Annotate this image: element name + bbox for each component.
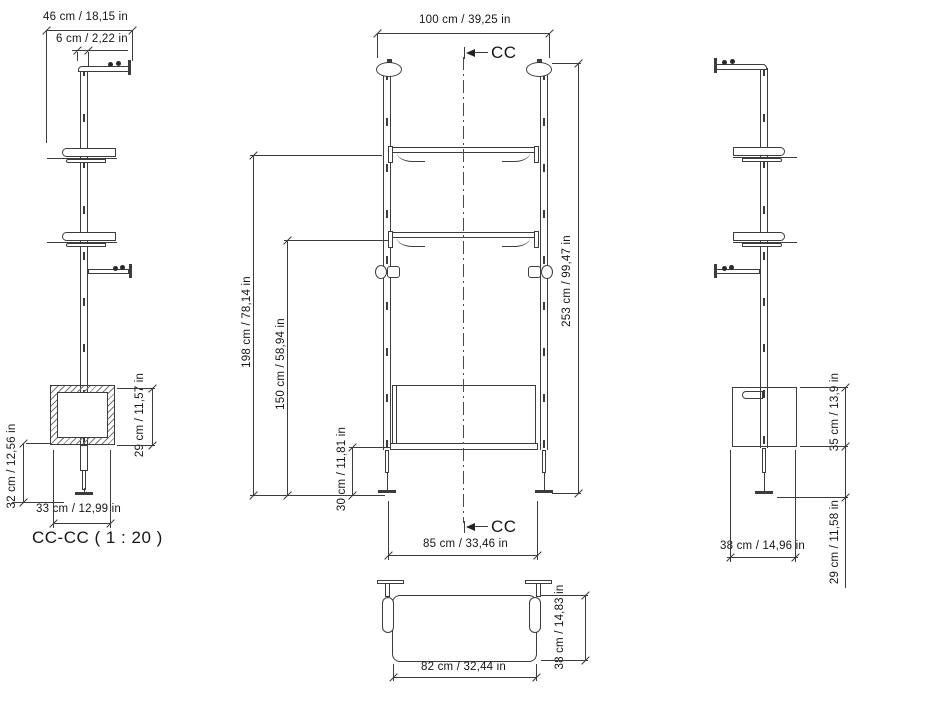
shelf-end-cap [388, 146, 393, 163]
dim-label-shelf1-height: 198 cm / 78,14 in [240, 257, 254, 387]
bracket-screw [116, 61, 121, 66]
wall-bracket-bar [377, 580, 404, 584]
extension-line [552, 493, 581, 494]
dim-label-panel-width: 82 cm / 32,44 in [421, 661, 506, 673]
foot-base [755, 491, 773, 494]
pole-clamp-top-view [529, 597, 541, 633]
pole-clamp-top-view [382, 597, 394, 633]
dim-label-inner-width: 85 cm / 33,46 in [423, 538, 508, 550]
foot-base [75, 492, 93, 495]
pole-inner-rod [762, 448, 766, 473]
dim-label-box-height: 29 cm / 11,57 in [133, 367, 147, 463]
dimension-line [845, 387, 846, 588]
dimension-line [53, 523, 110, 524]
dim-label-shelf2-height: 150 cm / 58,94 in [274, 299, 288, 429]
section-arrow [466, 49, 475, 57]
bracket-screw [722, 266, 727, 271]
dim-label-box-to-floor: 29 cm / 11,58 in [828, 492, 842, 592]
dimension-line [377, 33, 549, 34]
extension-line [541, 595, 588, 596]
desk-panel-edge [396, 385, 397, 446]
dimension-line [727, 557, 798, 558]
pole-inner-rod [385, 450, 389, 473]
floor-reference-line [250, 495, 385, 496]
cap-screw [387, 59, 392, 63]
extension-line [795, 450, 796, 562]
shelf-side-profile [733, 147, 785, 156]
section-marker-top: CC [491, 43, 517, 63]
wall-pole-left [383, 72, 391, 450]
bracket-end-cap [714, 264, 717, 278]
shelf-side-profile [62, 232, 116, 241]
pole-lower-tube [80, 445, 88, 471]
dimension-line [578, 63, 579, 493]
dim-label-pole-offset: 6 cm / 2,22 in [56, 33, 128, 45]
extension-line [88, 52, 89, 66]
dim-label-desk-clearance: 30 cm / 11,81 in [335, 414, 349, 524]
section-arrow [466, 523, 475, 531]
section-marker-bar [464, 521, 465, 533]
shelf-bracket-curve [397, 153, 425, 162]
pole-clamp-body [387, 266, 400, 278]
pole-top-cap [376, 62, 402, 77]
foot-stem [544, 473, 545, 490]
extension-line [110, 450, 111, 528]
wall-pole [760, 68, 768, 448]
shelf-end-cap [534, 231, 539, 248]
extension-line [541, 660, 588, 661]
extension-line [117, 388, 155, 389]
extension-line [552, 63, 581, 64]
dim-label-total-height: 253 cm / 99,47 in [560, 216, 574, 346]
technical-drawing-canvas: 46 cm / 18,15 in 6 cm / 2,22 in 29 cm / … [0, 0, 945, 709]
shelf-lip [66, 243, 106, 247]
section-arrow-tail [475, 526, 488, 527]
foot-base [378, 490, 396, 493]
dim-label-bracket-depth: 46 cm / 18,15 in [43, 11, 128, 23]
shelf-bracket-curve [502, 153, 530, 162]
shelf-lip [66, 159, 106, 163]
floor-reference-line [777, 497, 848, 498]
shelf-end-cap [534, 146, 539, 163]
pole-clamp-knob [375, 265, 387, 279]
bracket-end-cap [129, 264, 132, 278]
desk-box-section-inner [57, 392, 108, 438]
dim-label-depth: 38 cm / 14,96 in [720, 540, 805, 552]
section-marker-bottom: CC [491, 517, 517, 537]
extension-line [284, 240, 388, 241]
cap-screw [537, 59, 542, 63]
dimension-line [72, 50, 128, 51]
bracket-end-cap [714, 58, 717, 73]
bracket-screw [108, 62, 113, 67]
dimension-line [253, 155, 254, 495]
extension-line [388, 501, 389, 560]
dimension-line [393, 677, 536, 678]
pole-clamp-body [528, 266, 541, 278]
bracket-screw [120, 265, 125, 270]
shelf-bracket-curve [502, 238, 530, 247]
top-wall-bracket-arm [78, 66, 129, 72]
section-marker-bar [464, 47, 465, 59]
wall-pole-right [540, 72, 548, 450]
dimension-line [352, 447, 353, 495]
dimension-line [152, 388, 153, 446]
dimension-line [585, 595, 586, 660]
dimension-line [46, 30, 132, 31]
dimension-line [388, 555, 537, 556]
extension-line [250, 155, 382, 156]
section-arrow-tail [475, 52, 488, 53]
foot-base [535, 490, 553, 493]
extension-line [536, 664, 537, 681]
pole-inner-rod [542, 450, 546, 473]
shelf-lip [742, 158, 782, 162]
foot-stem [387, 473, 388, 490]
bracket-end-cap [128, 60, 131, 75]
dim-label-outer-width: 100 cm / 39,25 in [419, 14, 511, 26]
pole-top-cap [526, 62, 552, 77]
pole-adjustment-holes [543, 72, 545, 450]
extension-line [377, 33, 378, 58]
dim-label-panel-depth: 38 cm / 14,83 in [553, 577, 567, 677]
desk-panel-top-view [392, 595, 537, 662]
extension-line [800, 446, 848, 447]
shelf-bracket-curve [397, 238, 425, 247]
shelf-side-profile [733, 232, 785, 241]
shelf-lip [742, 243, 782, 247]
extension-line [730, 450, 731, 562]
extension-line [26, 443, 50, 444]
foot-stem [764, 473, 765, 491]
dim-label-box-width: 33 cm / 12,99 in [36, 503, 121, 515]
extension-line [393, 664, 394, 681]
extension-line [53, 450, 54, 528]
dim-label-box-height: 35 cm / 13,9 in [828, 362, 842, 462]
dimension-line [23, 443, 24, 503]
extension-line [800, 387, 848, 388]
pole-adjustment-holes [763, 68, 765, 448]
shelf-side-profile [62, 148, 116, 157]
bracket-screw [113, 266, 118, 271]
section-view-label: CC-CC ( 1 : 20 ) [32, 528, 163, 548]
shelf-end-cap [388, 231, 393, 248]
bracket-screw [729, 265, 734, 270]
extension-line [537, 501, 538, 560]
pole-inner-rod [82, 470, 86, 490]
desk-bottom-rail [390, 443, 538, 450]
bracket-screw [730, 59, 735, 64]
extension-line [117, 445, 155, 446]
section-centerline [463, 57, 464, 523]
pole-adjustment-holes [386, 72, 388, 450]
extension-line [349, 447, 391, 448]
extension-line [549, 33, 550, 58]
desk-panel [392, 385, 536, 446]
extension-line [77, 52, 78, 61]
dim-label-box-to-floor: 32 cm / 12,56 in [5, 418, 19, 514]
bracket-screw [722, 60, 727, 65]
bracket-stem [385, 583, 390, 597]
extension-line [46, 30, 47, 143]
extension-line [132, 30, 133, 61]
dimension-line [287, 240, 288, 495]
pole-clamp-knob [541, 265, 553, 279]
